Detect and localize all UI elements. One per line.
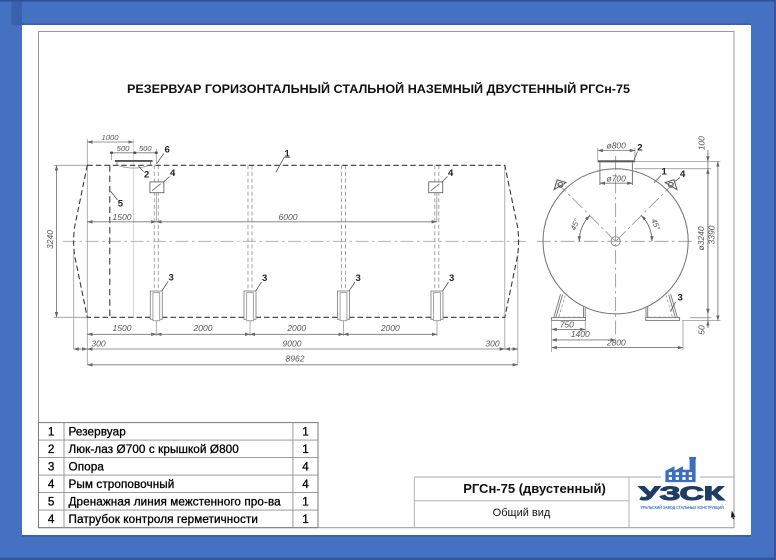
svg-text:1: 1 [48,426,55,439]
svg-text:300: 300 [91,339,105,349]
svg-text:1500: 1500 [113,212,132,222]
svg-text:ø800: ø800 [607,140,627,150]
svg-text:3: 3 [262,273,267,284]
svg-text:100: 100 [697,136,707,150]
svg-text:3: 3 [449,273,454,284]
svg-text:2: 2 [637,143,642,154]
svg-text:ø3240: ø3240 [696,226,706,250]
svg-text:3: 3 [48,461,55,474]
svg-text:6000: 6000 [279,212,298,222]
svg-text:1400: 1400 [571,329,590,339]
svg-text:Опора: Опора [69,461,105,474]
svg-text:9000: 9000 [283,339,302,349]
svg-text:1: 1 [302,513,309,526]
svg-text:Рым строповочный: Рым строповочный [69,478,175,491]
svg-text:ø700: ø700 [607,174,627,184]
svg-text:1: 1 [302,496,309,509]
svg-text:4: 4 [448,168,454,179]
svg-text:750: 750 [560,319,574,329]
svg-text:2: 2 [48,443,55,456]
svg-text:4: 4 [48,478,55,491]
svg-text:1: 1 [285,149,291,160]
svg-text:4: 4 [302,461,309,474]
svg-text:6: 6 [165,145,170,156]
svg-text:5: 5 [118,198,124,209]
svg-text:3240: 3240 [45,230,55,249]
svg-text:Резервуар: Резервуар [69,426,127,439]
svg-text:Дренажная линия межстенного пр: Дренажная линия межстенного про-ва [69,496,282,509]
svg-text:500: 500 [139,144,152,153]
svg-text:УРАЛЬСКИЙ ЗАВОД СТАЛЬНЫХ КОНСТ: УРАЛЬСКИЙ ЗАВОД СТАЛЬНЫХ КОНСТРУКЦИЙ [640,505,723,510]
svg-text:3: 3 [678,293,683,304]
svg-text:3: 3 [169,272,174,283]
svg-text:5: 5 [48,496,55,509]
svg-text:4: 4 [680,169,686,180]
svg-text:2000: 2000 [286,323,306,333]
svg-text:4: 4 [170,168,176,179]
svg-text:50: 50 [696,325,706,335]
svg-text:РЕЗЕРВУАР ГОРИЗОНТАЛЬНЫЙ СТАЛЬ: РЕЗЕРВУАР ГОРИЗОНТАЛЬНЫЙ СТАЛЬНОЙ НАЗЕМН… [127,81,630,96]
svg-text:1: 1 [662,166,668,177]
svg-text:2: 2 [144,169,149,180]
svg-text:4: 4 [302,478,309,491]
svg-text:3390: 3390 [707,225,717,244]
svg-text:РГСн-75 (двустенный): РГСн-75 (двустенный) [463,481,606,496]
svg-text:Общий вид: Общий вид [493,507,551,519]
svg-text:1: 1 [302,443,309,456]
svg-text:1500: 1500 [113,323,132,333]
svg-text:500: 500 [117,144,130,153]
svg-text:Патрубок контроля герметичност: Патрубок контроля герметичности [69,513,259,526]
svg-text:300: 300 [485,339,499,349]
svg-text:8962: 8962 [286,353,305,363]
svg-text:3: 3 [356,273,361,284]
svg-text:2000: 2000 [193,323,213,333]
svg-text:1: 1 [302,426,309,439]
svg-text:УЗСК: УЗСК [639,484,725,505]
svg-text:2000: 2000 [380,323,400,333]
svg-text:2800: 2800 [606,337,626,347]
svg-text:Люк-лаз Ø700 с крышкой Ø800: Люк-лаз Ø700 с крышкой Ø800 [69,443,240,456]
svg-text:4: 4 [48,513,55,526]
svg-text:1000: 1000 [102,133,120,142]
